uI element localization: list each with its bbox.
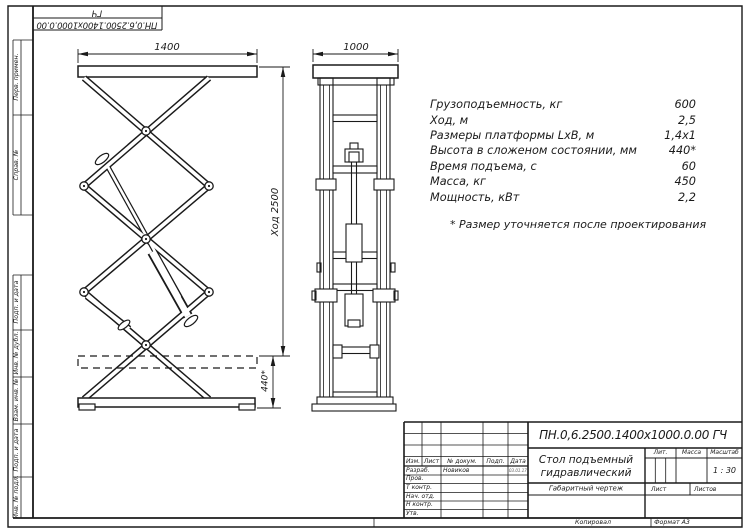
- rev-header-list: Лист: [424, 459, 439, 465]
- spec-label: Масса, кг: [430, 175, 486, 188]
- role-t-kontr: Т контр.: [406, 485, 432, 491]
- side-view-drawing: [312, 65, 398, 411]
- rev-header-podp: Подп.: [486, 459, 504, 465]
- dim-side-width: 1000: [343, 43, 368, 53]
- role-razrab-name: Новиков: [443, 468, 469, 474]
- spec-label: Мощность, кВт: [430, 191, 519, 204]
- margin-label-vzam-inv: Взам. инв. №: [14, 379, 20, 422]
- role-razrab-date: 03.01.17: [509, 469, 527, 473]
- spec-label: Ход, м: [430, 114, 468, 127]
- sheet-label: Лист: [651, 487, 666, 493]
- spec-value: 600: [674, 98, 696, 111]
- corner-stamp-designation: ПН.0,6.2500.1400х1000.0.00: [37, 20, 158, 29]
- lit-label: Лит.: [654, 450, 668, 456]
- spec-row: Время подъема, с60: [430, 159, 696, 174]
- margin-label-inv-podl: Инв. № подл.: [14, 475, 20, 518]
- spec-row: Размеры платформы LхВ, м1,4х1: [430, 128, 696, 143]
- dim-folded-height: 440*: [262, 370, 271, 392]
- spec-table: Грузоподъемность, кг600 Ход, м2,5 Размер…: [430, 97, 696, 205]
- spec-label: Размеры платформы LхВ, м: [430, 129, 594, 142]
- sheets-label: Листов: [694, 487, 716, 493]
- margin-label-perv-primen: Перв. примен.: [14, 53, 20, 100]
- spec-label: Высота в сложеном состоянии, мм: [430, 144, 637, 157]
- front-view-drawing: [78, 66, 257, 410]
- spec-value: 2,5: [678, 114, 696, 127]
- corner-stamp-doc-code: ГЧ: [92, 8, 102, 17]
- spec-label: Грузоподъемность, кг: [430, 98, 562, 111]
- spec-row: Грузоподъемность, кг600: [430, 97, 696, 112]
- role-razrab: Разраб.: [406, 468, 430, 474]
- title-block-name-line1: Стол подъемный: [539, 455, 633, 466]
- rev-header-dokum: № докум.: [447, 459, 477, 465]
- role-nach-otd: Нач. отд.: [406, 494, 435, 500]
- drawing-sheet: ПН.0,6.2500.1400х1000.0.00 ГЧ Перв. прим…: [0, 0, 750, 530]
- scale-label: Масштаб: [710, 450, 739, 456]
- margin-label-podp-data-2: Подп. и дата: [14, 429, 20, 472]
- dim-stroke-height: Ход 2500: [271, 188, 281, 237]
- spec-row: Мощность, кВт2,2: [430, 189, 696, 204]
- spec-row: Масса, кг450: [430, 174, 696, 189]
- title-block-doc-type: Габаритный чертеж: [549, 486, 623, 493]
- title-block-name-line2: гидравлический: [541, 468, 632, 479]
- spec-value: 2,2: [678, 191, 696, 204]
- role-prov: Пров.: [406, 476, 423, 482]
- margin-label-inv-dubl: Инв. № дубл.: [14, 331, 20, 374]
- spec-label: Время подъема, с: [430, 160, 537, 173]
- footer-copied-label: Копировал: [575, 520, 611, 526]
- spec-row: Ход, м2,5: [430, 112, 696, 127]
- drawing-linework: [0, 0, 750, 530]
- mass-label: Масса: [682, 450, 701, 456]
- rev-header-izm: Изм.: [406, 459, 420, 465]
- scale-value: 1 : 30: [713, 467, 736, 475]
- rev-header-data: Дата: [510, 459, 526, 465]
- spec-value: 440*: [669, 144, 696, 157]
- dim-front-width: 1400: [154, 43, 179, 53]
- title-block-designation: ПН.0,6.2500.1400х1000.0.00 ГЧ: [539, 429, 727, 441]
- spec-value: 450: [674, 175, 696, 188]
- spec-value: 60: [682, 160, 696, 173]
- margin-label-sprav-no: Справ. №: [14, 150, 20, 181]
- role-n-kontr: Н контр.: [406, 502, 433, 508]
- spec-value: 1,4х1: [664, 129, 696, 142]
- margin-label-podp-data-1: Подп. и дата: [14, 281, 20, 324]
- spec-note: * Размер уточняется после проектирования: [450, 219, 706, 230]
- footer-format-label: Формат А3: [654, 520, 690, 526]
- role-utv: Утв.: [406, 511, 419, 517]
- spec-row: Высота в сложеном состоянии, мм440*: [430, 143, 696, 158]
